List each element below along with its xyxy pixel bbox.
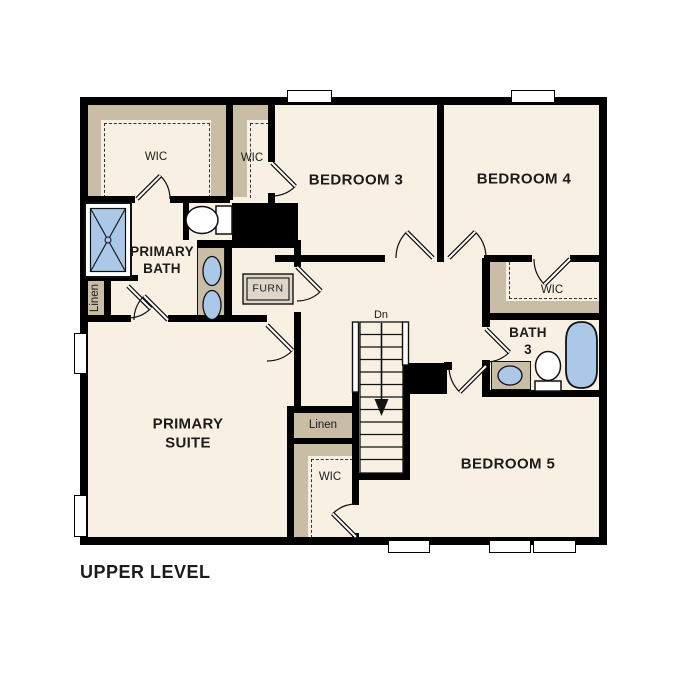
wall — [170, 196, 230, 203]
wall — [294, 438, 359, 444]
wall — [295, 315, 301, 322]
wall — [570, 255, 599, 262]
room-label-primary-bath: PRIMARY BATH — [123, 244, 201, 278]
wall — [352, 390, 359, 480]
wall — [86, 196, 135, 203]
window-bedroom5-mid — [489, 540, 531, 553]
wall — [226, 105, 233, 200]
room-label-bedroom4: BEDROOM 4 — [477, 171, 571, 190]
wall — [268, 193, 275, 203]
window-primary-suite-lower — [74, 495, 87, 537]
wall — [437, 105, 444, 262]
wall — [197, 240, 298, 248]
room-label-linen-hall: Linen — [309, 418, 337, 432]
window-primary-suite-upper — [74, 333, 87, 374]
wall — [490, 390, 599, 397]
wall — [268, 105, 275, 162]
wall — [275, 255, 385, 262]
wall — [484, 255, 532, 262]
room-label-furnace: FURN — [252, 282, 283, 295]
wall — [352, 473, 410, 480]
room-label-bath3: BATH 3 — [504, 325, 552, 359]
wall — [287, 406, 294, 537]
stairs-direction-label: Dn — [374, 309, 388, 323]
wall-exterior-right — [599, 97, 607, 545]
room-label-bedroom3: BEDROOM 3 — [309, 172, 403, 191]
wall — [183, 203, 189, 240]
room-label-linen-bath: Linen — [88, 284, 102, 312]
wall — [168, 315, 267, 322]
bath3-vanity — [491, 361, 531, 390]
chase-void — [232, 203, 298, 240]
wall — [86, 315, 131, 322]
room-label-bed4-wic: WIC — [541, 283, 563, 297]
wall — [352, 533, 359, 541]
window-bedroom4 — [511, 90, 555, 103]
room-label-hall-wic: WIC — [319, 470, 341, 484]
wall — [482, 313, 599, 320]
window-bedroom3 — [287, 90, 332, 103]
plan-title: UPPER LEVEL — [80, 562, 211, 583]
room-label-primary-wic: WIC — [145, 150, 167, 164]
floor-plan: WIC WIC BEDROOM 3 BEDROOM 4 WIC PRIMARY … — [0, 0, 687, 687]
room-label-bedroom5: BEDROOM 5 — [461, 456, 555, 475]
wall — [225, 240, 232, 322]
wall — [403, 394, 410, 480]
window-bedroom5-right — [533, 540, 576, 553]
wall — [294, 312, 301, 406]
room-label-bed3-wic: WIC — [241, 151, 263, 165]
wall — [482, 360, 490, 397]
window-bedroom5-left — [388, 540, 430, 553]
room-label-primary-suite: PRIMARY SUITE — [133, 415, 243, 453]
chase-void — [403, 363, 447, 394]
wall — [294, 406, 359, 413]
primary-bath-vanity — [197, 246, 225, 320]
